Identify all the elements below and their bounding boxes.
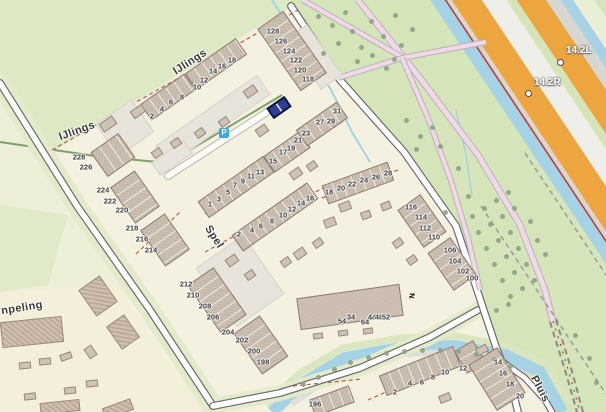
map-canvas[interactable] xyxy=(0,0,606,412)
map[interactable]: 2468101214161812812612412212011813579111… xyxy=(0,0,606,412)
